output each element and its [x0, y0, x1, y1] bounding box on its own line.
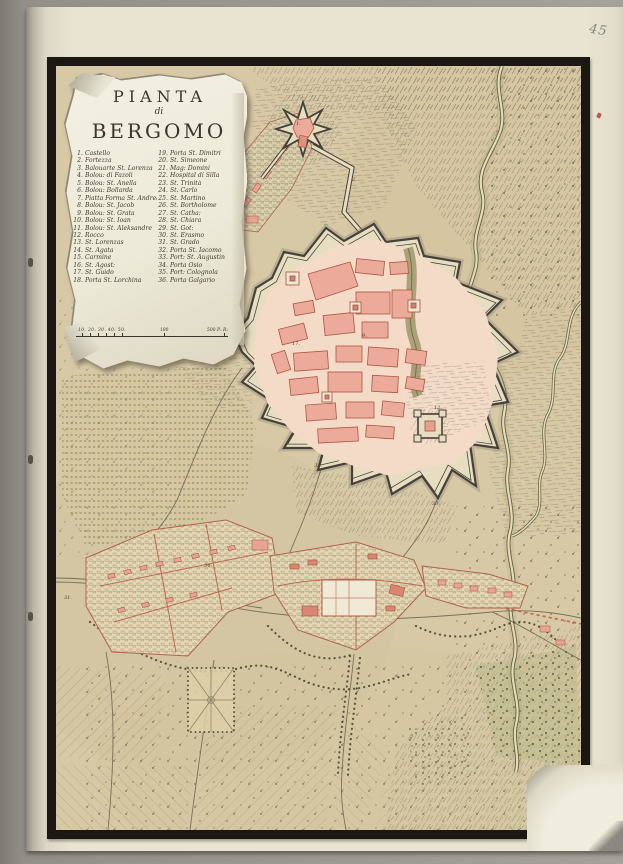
- page-curl-corner: [527, 765, 623, 851]
- legend-item: 7.Piatta Forma St. Andrea: [72, 195, 157, 202]
- map-title-city: BERGOMO: [62, 119, 248, 143]
- book-page: 45: [26, 7, 623, 851]
- legend-item: 16.St. Agost:: [72, 262, 157, 269]
- legend-item: 3.Balouarte St. Lorenza: [72, 165, 157, 172]
- legend-item: 23.St. Trinità: [157, 180, 242, 187]
- legend-item: 14.St. Agata: [72, 247, 157, 254]
- legend-item: 29.St. Got:: [157, 225, 242, 232]
- legend-item: 26.St. Bortholome: [157, 202, 242, 209]
- legend-item: 21.Mag: Domini: [157, 165, 242, 172]
- scale-end-label: 500 P: R:: [207, 328, 228, 333]
- legend-item: 18.Porta St. Lorchina: [72, 277, 157, 284]
- legend-item: 2.Fortezza: [72, 157, 157, 164]
- legend-item: 20.St. Simeone: [157, 157, 242, 164]
- legend-item: 12.Rocco: [72, 232, 157, 239]
- legend-column-right: 19.Porta St. Dimitri20.St. Simeone21.Mag…: [157, 150, 242, 284]
- legend-item: 19.Porta St. Dimitri: [157, 150, 242, 157]
- legend-item: 31.St. Grado: [157, 239, 242, 246]
- rocca-fort: [410, 406, 450, 446]
- legend-item: 1.Castello: [72, 150, 157, 157]
- map-frame: 1. 2. 3. 9. 12. 17. 31. 32. 33. 34. PIAN…: [47, 57, 590, 839]
- map-title: PIANTA: [62, 87, 248, 106]
- binding-stitch: [28, 258, 33, 267]
- legend-item: 30.St. Erasmo: [157, 232, 242, 239]
- binding-stitch: [28, 612, 33, 621]
- legend-item: 4.Bolou: di Fazoli: [72, 172, 157, 179]
- map-title-di: di: [62, 107, 248, 117]
- castle-star-fort: [276, 102, 330, 156]
- legend-column-left: 1.Castello2.Fortezza3.Balouarte St. Lore…: [72, 150, 157, 284]
- scale-mid-label: 100: [160, 328, 168, 333]
- legend-item: 13.St. Lorenzas: [72, 239, 157, 246]
- legend-item: 9.Bolou: St. Grata: [72, 210, 157, 217]
- legend-item: 6.Bolou: Bollarda: [72, 187, 157, 194]
- legend-item: 22.Hospital di Silla: [157, 172, 242, 179]
- legend: 1.Castello2.Fortezza3.Balouarte St. Lore…: [62, 150, 248, 284]
- legend-item: 17.St. Guido: [72, 269, 157, 276]
- scale-tick-labels: 10. 20. 30. 40. 50.: [78, 328, 126, 333]
- legend-item: 5.Bolou: St. Anella: [72, 180, 157, 187]
- scanned-atlas-page: { "page": { "number": "45" }, "cartouche…: [0, 0, 623, 864]
- page-number: 45: [588, 22, 609, 40]
- legend-item: 34.Porta Osio: [157, 262, 242, 269]
- legend-item: 15.Carmine: [72, 254, 157, 261]
- legend-item: 25.St. Martino: [157, 195, 242, 202]
- formal-garden: [188, 668, 234, 732]
- title-cartouche: PIANTA di BERGOMO 1.Castello2.Fortezza3.…: [62, 71, 248, 371]
- ink-speck: [596, 112, 602, 118]
- legend-item: 32.Porta St. Iacomo: [157, 247, 242, 254]
- scale-bar: 10. 20. 30. 40. 50. 100 500 P: R:: [76, 329, 228, 341]
- binding-stitch: [28, 455, 33, 464]
- legend-item: 24.St. Carlo: [157, 187, 242, 194]
- legend-item: 35.Port: Colognola: [157, 269, 242, 276]
- legend-item: 11.Bolou: St. Aleksandre: [72, 225, 157, 232]
- legend-item: 8.Bolou: St. Jacob: [72, 202, 157, 209]
- map-surface: 1. 2. 3. 9. 12. 17. 31. 32. 33. 34. PIAN…: [56, 66, 581, 830]
- legend-item: 27.St. Catha:: [157, 210, 242, 217]
- legend-item: 28.St. Chiara: [157, 217, 242, 224]
- legend-item: 36.Porta Galgario: [157, 277, 242, 284]
- legend-item: 10.Bolou: St. Ioan: [72, 217, 157, 224]
- legend-item: 33.Port: St. Augustin: [157, 254, 242, 261]
